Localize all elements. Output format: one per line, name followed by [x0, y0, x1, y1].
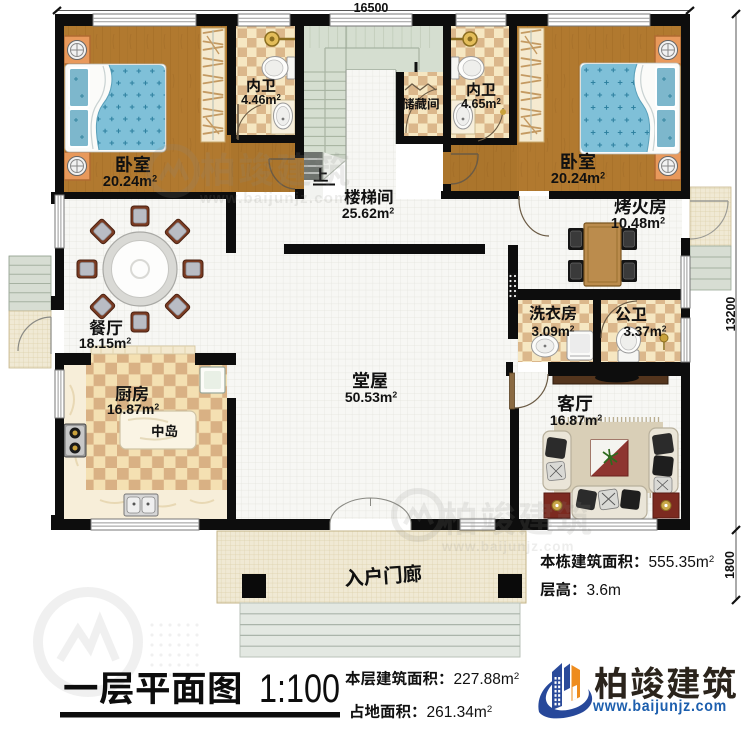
svg-text:4.46m2: 4.46m2	[241, 93, 281, 107]
svg-text:www.baijunjz.com: www.baijunjz.com	[199, 190, 349, 207]
svg-text:1800: 1800	[723, 551, 737, 579]
svg-text:20.24m2: 20.24m2	[551, 170, 605, 187]
svg-text:18.15m2: 18.15m2	[79, 335, 131, 351]
svg-text:261.34m2: 261.34m2	[427, 704, 493, 721]
svg-text:50.53m2: 50.53m2	[345, 389, 397, 405]
svg-text:10.48m2: 10.48m2	[611, 215, 665, 232]
svg-text:16.87m2: 16.87m2	[550, 412, 602, 428]
svg-text:www.baijunjz.com: www.baijunjz.com	[592, 698, 727, 715]
svg-text:13200: 13200	[724, 297, 738, 332]
svg-text:227.88m2: 227.88m2	[454, 671, 520, 688]
svg-text:3.37m2: 3.37m2	[624, 324, 667, 339]
svg-text:3.6m: 3.6m	[587, 582, 621, 599]
svg-text:16500: 16500	[354, 1, 389, 15]
svg-text:25.62m2: 25.62m2	[342, 205, 394, 221]
svg-text:1:100: 1:100	[259, 667, 340, 711]
svg-text:3.09m2: 3.09m2	[532, 324, 575, 339]
svg-text:www.baijunjz.com: www.baijunjz.com	[441, 539, 575, 554]
svg-text:4.65m2: 4.65m2	[461, 97, 501, 111]
svg-text:16.87m2: 16.87m2	[107, 401, 159, 417]
svg-text:555.35m2: 555.35m2	[649, 554, 715, 571]
